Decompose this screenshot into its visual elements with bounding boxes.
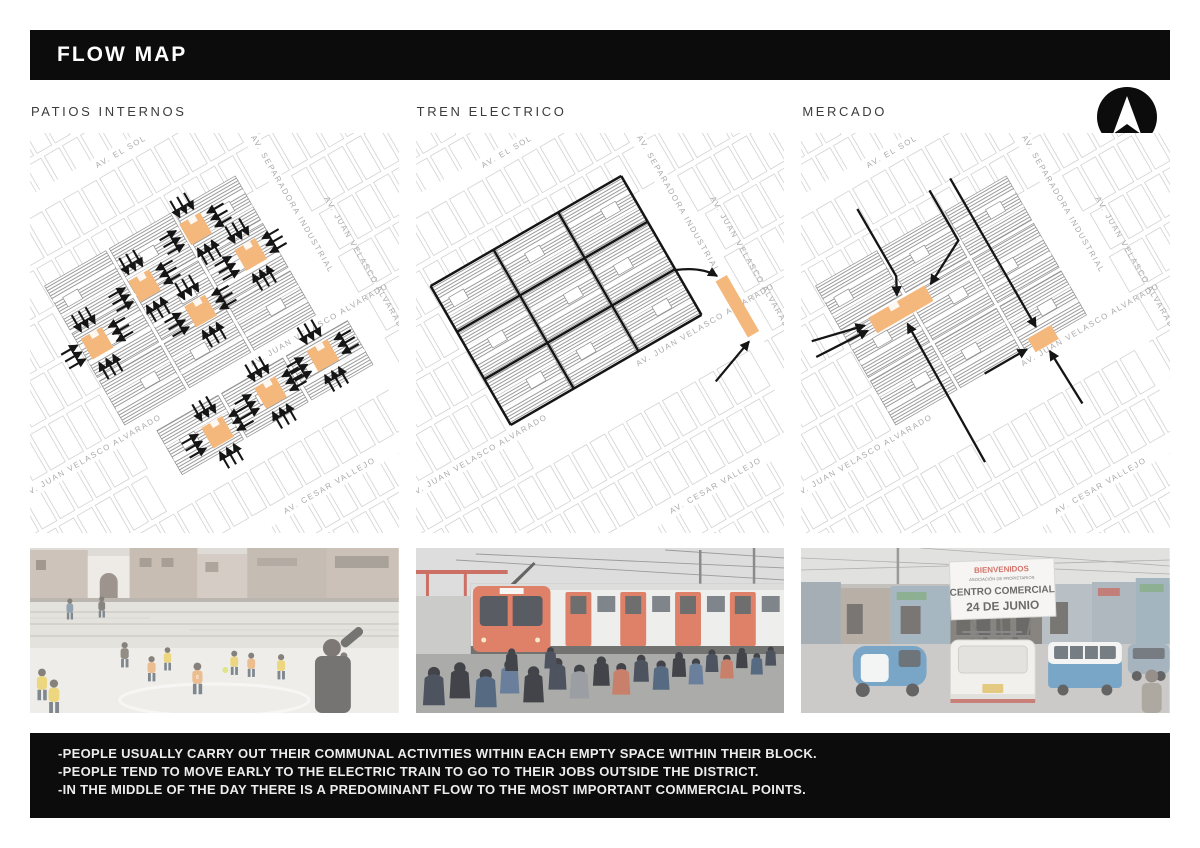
map-mercado: AV. EL SOLAV. SEPARADORA INDUSTRIALAV. J… <box>801 133 1170 533</box>
page-title: FLOW MAP <box>57 43 187 67</box>
panel-label-tren: TREN ELECTRICO <box>417 104 785 119</box>
rotated-street-grid: AV. EL SOLAV. SEPARADORA INDUSTRIALAV. J… <box>30 133 399 533</box>
map-patios-internos: AV. EL SOLAV. SEPARADORA INDUSTRIALAV. J… <box>30 133 399 533</box>
photo-market-street: BIENVENIDOS ASOCIACIÓN DE PROPIETARIOS C… <box>801 548 1170 713</box>
panel-columns: PATIOS INTERNOS AV. EL SOLAV. SEPARADORA… <box>30 98 1170 713</box>
map-tren-electrico: AV. EL SOLAV. SEPARADORA INDUSTRIALAV. J… <box>416 133 785 533</box>
photo-soccer-scene: 8 13 <box>30 548 399 713</box>
panel-tren-electrico: TREN ELECTRICO AV. EL SOLAV. SEPARADORA … <box>416 98 785 713</box>
panel-label-patios: PATIOS INTERNOS <box>31 104 399 119</box>
panel-patios-internos: PATIOS INTERNOS AV. EL SOLAV. SEPARADORA… <box>30 98 399 713</box>
rotated-street-grid: AV. EL SOLAV. SEPARADORA INDUSTRIALAV. J… <box>416 133 785 533</box>
notes-bar: -PEOPLE USUALLY CARRY OUT THEIR COMMUNAL… <box>30 733 1170 818</box>
photo-electric-train <box>416 548 785 713</box>
flow-map-board: FLOW MAP PATIOS INTERNOS AV. EL SOLAV. S… <box>0 0 1200 848</box>
photo-train-scene <box>416 548 785 713</box>
note-line-1: -PEOPLE USUALLY CARRY OUT THEIR COMMUNAL… <box>58 746 1170 761</box>
photo-market-scene: BIENVENIDOS ASOCIACIÓN DE PROPIETARIOS C… <box>801 548 1170 713</box>
photo-communal-courtyard: 8 13 <box>30 548 399 713</box>
note-line-2: -PEOPLE TEND TO MOVE EARLY TO THE ELECTR… <box>58 764 1170 779</box>
note-line-3: -IN THE MIDDLE OF THE DAY THERE IS A PRE… <box>58 782 1170 797</box>
title-bar: FLOW MAP <box>30 30 1170 80</box>
panel-label-mercado: MERCADO <box>802 104 1170 119</box>
rotated-street-grid: AV. EL SOLAV. SEPARADORA INDUSTRIALAV. J… <box>801 133 1170 533</box>
panel-mercado: MERCADO AV. EL SOLAV. SEPARADORA INDUSTR… <box>801 98 1170 713</box>
